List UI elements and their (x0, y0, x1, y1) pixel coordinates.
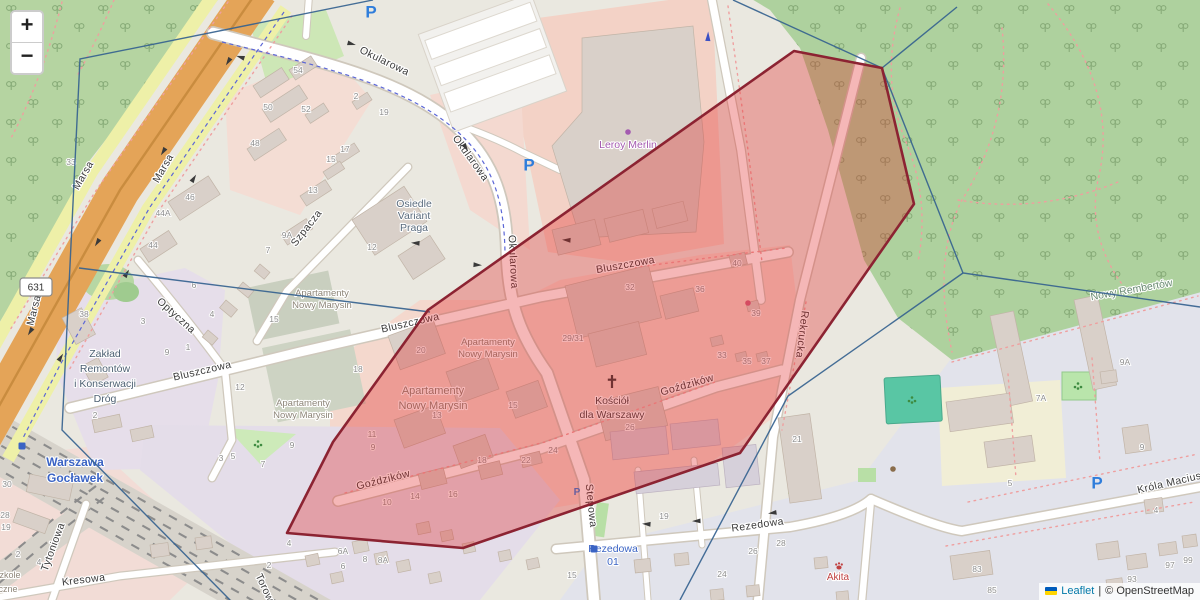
house-number: 9 (165, 347, 170, 357)
place-label: Akita (827, 572, 850, 583)
osm-copyright: © OpenStreetMap (1105, 584, 1194, 598)
playground-icon (914, 400, 917, 403)
house-number: 24 (717, 569, 727, 579)
house-number: 48 (250, 138, 260, 148)
house-number: 5 (1008, 478, 1013, 488)
playground-icon (1077, 382, 1080, 385)
house-number: 54 (293, 65, 303, 75)
house-number: 28 (776, 538, 786, 548)
house-number: 4 (37, 557, 42, 567)
station-icon (591, 546, 598, 553)
place-label: Warszawa (46, 455, 104, 469)
house-number: 44A (155, 208, 170, 218)
house-number: 26 (748, 546, 758, 556)
place-label: zkole (0, 570, 21, 580)
playground-icon (260, 444, 263, 447)
house-number: 28 (0, 510, 10, 520)
house-number: 8 (363, 554, 368, 564)
house-number: 17 (340, 144, 350, 154)
place-label: Leroy Merlin (599, 139, 657, 151)
house-number: 15 (326, 154, 336, 164)
house-number: 2 (93, 410, 98, 420)
house-number: 7A (1036, 393, 1047, 403)
place-label: Gocławek (47, 471, 103, 485)
road-shield-number: 631 (28, 283, 45, 294)
paw-icon (841, 563, 843, 565)
house-number: 15 (269, 314, 279, 324)
place-label: Apartamenty (276, 398, 330, 409)
station-icon (19, 443, 26, 450)
house-number: 9A (1120, 357, 1131, 367)
playground-icon (257, 445, 260, 448)
ukraine-flag-icon (1045, 587, 1057, 595)
station-icon (591, 546, 598, 553)
house-number: 2 (16, 549, 21, 559)
playground-icon (257, 440, 260, 443)
parking-icon: P (365, 3, 376, 22)
house-number: 15 (567, 570, 577, 580)
house-number: 7 (266, 245, 271, 255)
house-number: 19 (659, 511, 669, 521)
house-number: 9 (290, 440, 295, 450)
house-number: 12 (367, 242, 377, 252)
poi-dot-icon (625, 129, 631, 135)
zoom-out-button[interactable]: − (12, 43, 42, 73)
parking-icon: P (365, 3, 376, 22)
place-label: Variant (398, 210, 431, 222)
parking-icon: P (523, 156, 534, 175)
house-number: 9A (282, 230, 293, 240)
place-label: Zakład (89, 348, 121, 360)
house-number: 30 (2, 479, 12, 489)
house-number: 9 (1140, 442, 1145, 452)
house-number: 46 (185, 192, 195, 202)
house-number: 8A (378, 555, 389, 565)
house-number: 38 (79, 309, 89, 319)
paw-icon (838, 562, 840, 564)
house-number: 21 (792, 434, 802, 444)
house-number: 2 (267, 560, 272, 570)
house-number: 6A (338, 546, 349, 556)
playground-icon (254, 444, 257, 447)
paw-icon (835, 563, 837, 565)
house-number: 4 (210, 309, 215, 319)
place-label: Nowy Marysin (273, 410, 333, 421)
place-label: i Konserwacji (74, 378, 136, 390)
house-number: 99 (1183, 555, 1193, 565)
house-number: 44 (148, 240, 158, 250)
house-number: 12 (235, 382, 245, 392)
shield-icon: 631 (20, 278, 52, 296)
poi-dot-icon (890, 466, 896, 472)
place-label: czne (0, 584, 18, 594)
house-number: 1 (186, 342, 191, 352)
station-icon (19, 443, 26, 450)
house-number: 19 (1, 522, 11, 532)
place-label: 01 (607, 556, 619, 568)
house-number: 5 (231, 451, 236, 461)
parking-icon: P (1091, 474, 1102, 493)
house-number: 83 (972, 564, 982, 574)
place-label: Dróg (94, 393, 117, 405)
map-canvas[interactable]: MarsaMarsaMarsaOkularowaOkularowaOkularo… (0, 0, 1200, 600)
paw-icon (836, 566, 841, 570)
leaflet-link[interactable]: Leaflet (1061, 584, 1094, 598)
house-number: 19 (379, 107, 389, 117)
zoom-in-button[interactable]: + (12, 12, 42, 43)
house-number: 3 (141, 316, 146, 326)
house-number: 2 (354, 91, 359, 101)
place-label: Osiedle (396, 198, 432, 210)
playground-icon (1080, 386, 1083, 389)
map-tiles: MarsaMarsaMarsaOkularowaOkularowaOkularo… (0, 0, 1200, 600)
house-number: 50 (263, 102, 273, 112)
house-number: 18 (353, 364, 363, 374)
house-number: 3 (219, 453, 224, 463)
house-number: 7 (261, 459, 266, 469)
place-label: Remontów (80, 363, 131, 375)
house-number: 52 (301, 104, 311, 114)
house-number: 6 (341, 561, 346, 571)
house-number: 4 (1154, 505, 1159, 515)
playground-icon (908, 400, 911, 403)
house-number: 13 (308, 185, 318, 195)
parking-icon: P (523, 156, 534, 175)
house-number: 85 (987, 585, 997, 595)
playground-icon (911, 401, 914, 404)
playground-icon (1077, 387, 1080, 390)
playground-icon (1074, 386, 1077, 389)
house-number: 6 (192, 280, 197, 290)
zoom-control: + − (10, 10, 44, 75)
parking-icon: P (1091, 474, 1102, 493)
place-label: Apartamenty (295, 288, 349, 299)
attribution-bar: Leaflet | © OpenStreetMap (1039, 583, 1200, 600)
house-number: 4 (287, 538, 292, 548)
playground-icon (911, 396, 914, 399)
dot-icon (625, 129, 631, 135)
place-label: Praga (400, 222, 428, 234)
attribution-separator: | (1098, 584, 1101, 598)
dot-icon (890, 466, 896, 472)
house-number: 97 (1165, 560, 1175, 570)
